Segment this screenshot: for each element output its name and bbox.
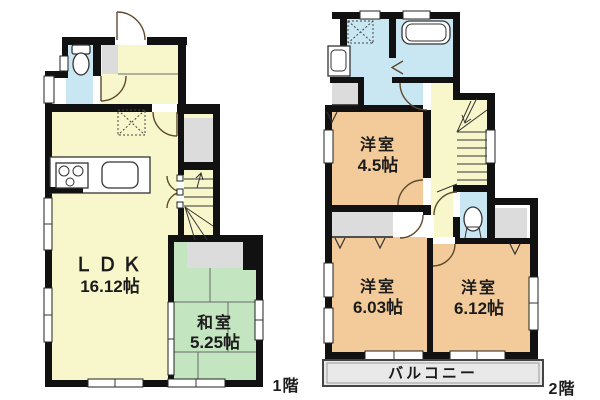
wall-segment — [453, 12, 460, 100]
wall-corner-block — [243, 235, 263, 270]
wall-segment — [45, 380, 263, 387]
toilet-door-opening — [93, 76, 101, 104]
floor2: 洋室 4.5帖 洋室 6.03帖 洋室 6.12帖 バルコニー 2階 — [323, 11, 575, 398]
stove-icon — [56, 163, 88, 188]
room612-label: 洋室 — [461, 278, 497, 297]
room603-door-opening — [426, 215, 434, 238]
window — [324, 130, 333, 163]
balcony-label: バルコニー — [388, 365, 478, 382]
wall-segment — [45, 104, 152, 112]
window — [403, 11, 430, 19]
wall-segment — [487, 205, 495, 238]
room45-door-opening — [423, 178, 431, 205]
window — [60, 56, 68, 71]
ldk-door-opening — [152, 104, 177, 112]
room603-label: 洋室 — [360, 277, 396, 296]
room45-size-label: 4.5帖 — [358, 155, 399, 175]
door-jamb — [177, 175, 183, 181]
wall-segment — [453, 217, 460, 238]
room612-door-opening — [433, 237, 455, 244]
entrance-door-arc — [117, 12, 145, 40]
kitchen-sink-icon — [102, 162, 138, 188]
floorplan-image: ＬＤＫ 16.12帖 和室 5.25帖 1階 — [0, 0, 600, 400]
washitsu-label: 和室 — [197, 313, 233, 332]
room603-size-label: 6.03帖 — [353, 297, 403, 317]
wall-segment — [178, 208, 184, 240]
room45-label: 洋室 — [360, 135, 396, 154]
wall-segment — [340, 12, 347, 48]
door-jamb — [177, 189, 183, 195]
closet-1f — [184, 118, 213, 164]
floor2-label: 2階 — [549, 380, 576, 398]
genkan-tataki — [102, 43, 118, 74]
room603-door-arc — [400, 215, 423, 238]
kitchen-counter — [47, 157, 150, 193]
wall-segment — [423, 110, 431, 178]
wall-segment — [213, 104, 220, 240]
wall-segment — [184, 162, 213, 170]
wall-segment — [62, 37, 115, 45]
bathtub-icon — [402, 21, 450, 44]
door-jamb — [177, 202, 183, 208]
window — [44, 76, 54, 103]
wall-segment — [332, 12, 460, 19]
toilet-icon — [72, 45, 90, 75]
wall-segment — [423, 205, 431, 215]
window — [486, 130, 495, 163]
closet-612 — [495, 208, 527, 238]
window — [324, 308, 333, 343]
window — [360, 11, 380, 19]
washroom-door-opening — [423, 83, 431, 110]
wall-segment — [325, 105, 430, 112]
ldk-label: ＬＤＫ — [74, 255, 146, 276]
wall-segment — [93, 43, 101, 76]
ldk-size-label: 16.12帖 — [80, 276, 140, 296]
wall-segment — [168, 242, 174, 302]
floorplan-canvas: ＬＤＫ 16.12帖 和室 5.25帖 1階 — [0, 0, 600, 400]
floor1: ＬＤＫ 16.12帖 和室 5.25帖 1階 — [44, 12, 299, 395]
closet-45 — [332, 83, 358, 105]
oshiire-closet — [187, 240, 243, 268]
washitsu-size-label: 5.25帖 — [190, 332, 240, 352]
toilet-bowl — [73, 53, 89, 75]
closet-603 — [332, 212, 393, 237]
wall-segment — [325, 205, 430, 212]
wall-segment — [453, 93, 495, 100]
wall-segment — [358, 77, 364, 105]
wall-segment — [392, 77, 460, 83]
room612-size-label: 6.12帖 — [454, 298, 504, 318]
wall-segment — [487, 198, 538, 205]
entrance-opening — [115, 37, 147, 45]
wall-segment — [389, 19, 396, 58]
wash-basin-icon — [328, 46, 350, 76]
toilet2f-door-opening — [453, 192, 460, 217]
wall-segment — [178, 112, 184, 175]
wall-segment — [325, 352, 538, 360]
wall-segment — [453, 238, 538, 244]
wall-segment — [453, 185, 495, 192]
floor1-label: 1階 — [273, 377, 300, 395]
room-ldk — [50, 108, 178, 383]
wall-segment — [178, 37, 186, 110]
window — [324, 263, 333, 297]
